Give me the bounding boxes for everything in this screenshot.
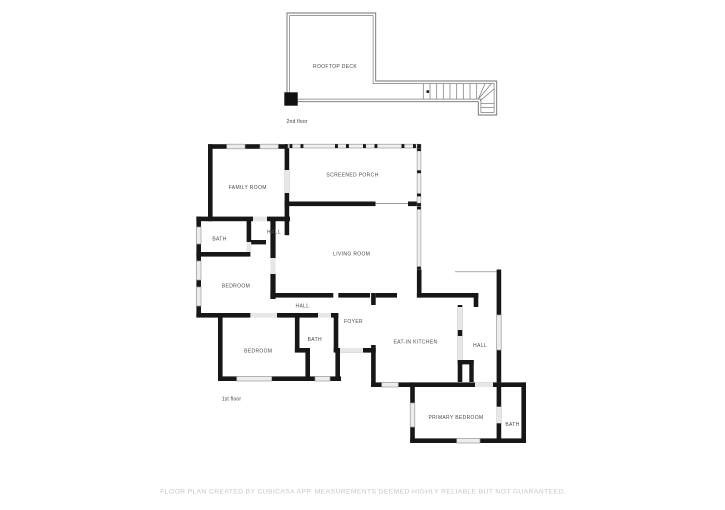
floor-plan-svg: ROOFTOP DECK 2nd floor [0, 0, 725, 510]
room-label-bath-primary: BATH [505, 422, 519, 428]
room-label-bedroom-lower: BEDROOM [244, 349, 272, 355]
second-floor-plan: ROOFTOP DECK 2nd floor [284, 13, 496, 125]
floor-label-2nd: 2nd floor [287, 119, 308, 125]
footer-disclaimer: FLOOR PLAN CREATED BY CUBICASA APP. MEAS… [160, 489, 566, 496]
stair-post-dot [427, 90, 430, 93]
room-label-hall-center: HALL [296, 303, 310, 309]
porch-screen-walls [288, 144, 497, 272]
room-label-foyer: FOYER [344, 319, 363, 325]
room-label-bedroom-upper: BEDROOM [222, 284, 250, 290]
room-label-hall-right: HALL [473, 343, 487, 349]
chimney-post [284, 92, 297, 105]
first-floor-plan: FAMILY ROOM SCREENED PORCH BATH HALL LIV… [196, 144, 526, 443]
room-label-eat-in-kitchen: EAT-IN KITCHEN [394, 340, 438, 346]
room-labels: FAMILY ROOM SCREENED PORCH BATH HALL LIV… [212, 173, 519, 429]
floor-plan-canvas: ROOFTOP DECK 2nd floor [0, 0, 725, 510]
floor-label-1st: 1st floor [222, 397, 242, 403]
room-label-bath-upper: BATH [212, 237, 226, 243]
staircase [423, 84, 494, 108]
room-label-screened-porch: SCREENED PORCH [326, 173, 378, 179]
room-label-hall-upper: HALL [267, 230, 281, 236]
room-label-bath-center: BATH [308, 337, 322, 343]
room-label-family-room: FAMILY ROOM [229, 185, 267, 191]
room-label-living-room: LIVING ROOM [333, 251, 370, 257]
room-label-rooftop-deck: ROOFTOP DECK [313, 64, 357, 70]
room-label-primary-bedroom: PRIMARY BEDROOM [428, 415, 483, 421]
